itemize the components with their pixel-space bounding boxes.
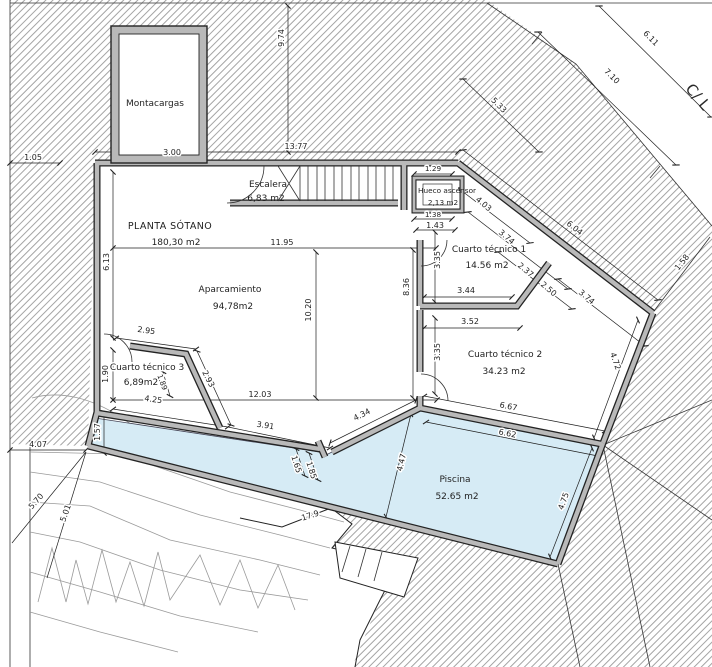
room-label-hueco-ascensor: Hueco ascensor <box>418 186 476 195</box>
dim-1-43: 1.43 <box>426 221 444 230</box>
dim-3-00: 3.00 <box>163 148 181 157</box>
dim-10-20: 10.20 <box>304 299 313 322</box>
montacargas-shaft <box>111 26 207 163</box>
room-label-piscina: Piscina <box>439 475 470 485</box>
room-label-cuarto-tecnico-1: Cuarto técnico 1 <box>452 244 526 255</box>
plan-title: PLANTA SÓTANO <box>128 220 212 232</box>
dim-3-52: 3.52 <box>461 317 479 326</box>
room-label-cuarto-tecnico-3: Cuarto técnico 3 <box>110 362 184 373</box>
dim-9-74: 9.74 <box>277 29 286 47</box>
dim-13-77: 13.77 <box>285 142 308 151</box>
dim-6-13: 6.13 <box>102 253 111 271</box>
room-label-escalera: Escalera <box>249 180 287 190</box>
dim-8-36: 8.36 <box>402 278 411 296</box>
dim-1-57: 1.57 <box>93 423 102 441</box>
dim-4-07: 4.07 <box>29 440 47 449</box>
room-area-hueco-ascensor: 2,13 m2 <box>428 198 458 207</box>
room-label-montacargas: Montacargas <box>126 99 184 109</box>
floor-plan-canvas: Montacargas Escalera 6,83 m2 Hueco ascen… <box>0 0 712 667</box>
dim-3-35-upper: 3.35 <box>433 251 442 269</box>
room-label-aparcamiento: Aparcamiento <box>199 285 262 295</box>
room-area-escalera: 6,83 m2 <box>247 194 284 204</box>
room-area-cuarto-tecnico-2: 34.23 m2 <box>482 367 525 377</box>
floor-plan-page: Montacargas Escalera 6,83 m2 Hueco ascen… <box>0 0 712 667</box>
dim-1-05: 1.05 <box>24 153 42 162</box>
room-area-aparcamiento: 94,78m2 <box>213 302 253 312</box>
room-label-cuarto-tecnico-2: Cuarto técnico 2 <box>468 349 542 360</box>
dim-1-29: 1.29 <box>425 164 442 173</box>
room-area-cuarto-tecnico-3: 6,89m2 <box>124 378 159 388</box>
dim-12-03: 12.03 <box>249 390 272 399</box>
dim-1-38: 1.38 <box>425 210 442 219</box>
dim-3-35-lower: 3.35 <box>433 343 442 361</box>
dim-11-95: 11.95 <box>271 238 294 247</box>
dim-3-44: 3.44 <box>457 286 475 295</box>
plan-title-area: 180,30 m2 <box>152 238 201 248</box>
room-area-cuarto-tecnico-1: 14.56 m2 <box>465 261 508 271</box>
dim-1-90: 1.90 <box>101 365 110 383</box>
room-area-piscina: 52.65 m2 <box>435 492 478 502</box>
